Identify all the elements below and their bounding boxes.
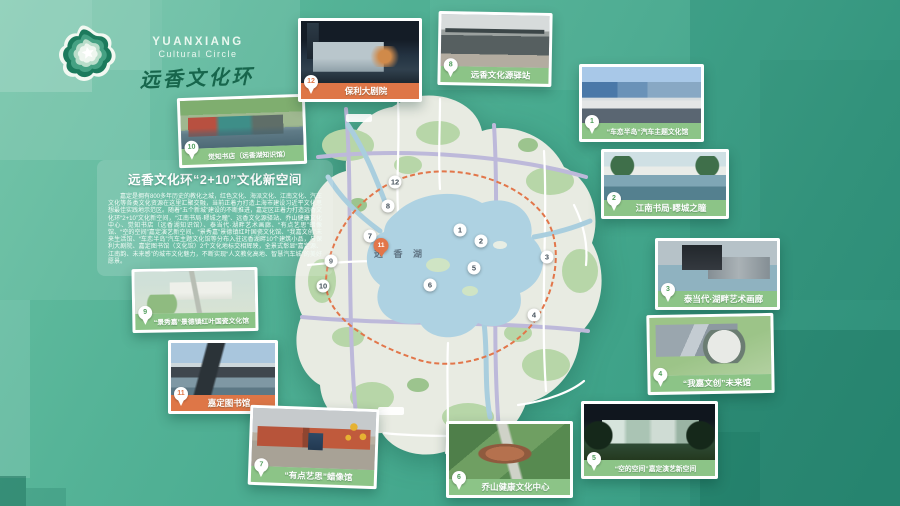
location-label-bar: 8 远香文化源驿站 — [440, 66, 548, 84]
location-card-jiading-library[interactable]: 11 嘉定图书馆 — [168, 340, 278, 414]
location-label: 嘉定图书馆 — [196, 397, 251, 409]
map-pin-badge: 6 — [452, 471, 467, 493]
map-marker-8[interactable]: 8 — [382, 200, 395, 213]
intro-title: 远香文化环“2+10”文化新空间 — [108, 169, 322, 188]
location-label: 泰当代·湖畔艺术画廊 — [672, 293, 763, 305]
location-photo — [251, 408, 376, 470]
location-label-bar: 3 泰当代·湖畔艺术画廊 — [658, 291, 777, 307]
brand-logo: YUANXIANG Cultural Circle 远香文化环 — [45, 16, 285, 102]
poster-canvas: YUANXIANG Cultural Circle 远香文化环 远香文化环“2+… — [0, 0, 900, 506]
logo-name: YUANXIANG — [133, 36, 263, 48]
location-photo — [449, 424, 570, 479]
bg-block — [26, 488, 66, 506]
location-card-juezhi-bookstore[interactable]: 10 觉知书店（远香湖知识馆） — [177, 94, 307, 168]
map-pin-badge: 10 — [184, 140, 200, 163]
location-card-lakeside-gallery[interactable]: 3 泰当代·湖畔艺术画廊 — [655, 238, 780, 310]
intro-body: 嘉定是拥有800多年历史的教化之城，红色文化、海派文化、江南文化、汽车文化等各类… — [108, 194, 322, 266]
location-photo — [301, 21, 419, 83]
location-label: “车恋半岛”汽车主题文化馆 — [595, 126, 689, 136]
map-marker-6[interactable]: 6 — [424, 279, 437, 292]
map-pin-badge: 4 — [653, 368, 668, 390]
map-pin-badge: 12 — [304, 75, 319, 97]
star-blob-icon — [52, 17, 124, 89]
location-label-bar: 9 “景秀嘉”景德镇红叶国瓷文化馆 — [135, 312, 255, 330]
location-label: “我嘉文创”未来馆 — [671, 376, 751, 389]
location-label-bar: 6 乔山健康文化中心 — [449, 479, 570, 495]
location-label-bar: 2 江南书局·疁城之瞳 — [604, 200, 726, 216]
location-photo — [604, 152, 726, 200]
location-card-auto-theme-hall[interactable]: 1 “车恋半岛”汽车主题文化馆 — [579, 64, 704, 142]
location-label-bar: 5 “空的空间”嘉定演艺新空间 — [584, 460, 715, 476]
logo-calligraphy: 远香文化环 — [117, 59, 278, 94]
location-card-jingxiujia-porcelain[interactable]: 9 “景秀嘉”景德镇红叶国瓷文化馆 — [131, 267, 258, 333]
map-pin-badge: 7 — [254, 458, 270, 481]
location-label: 远香文化源驿站 — [459, 68, 531, 81]
location-label: 乔山健康文化中心 — [469, 481, 549, 493]
location-label: “空的空间”嘉定演艺新空间 — [603, 463, 697, 473]
map-marker-3[interactable]: 3 — [541, 251, 554, 264]
map-marker-5[interactable]: 5 — [468, 262, 481, 275]
location-photo — [584, 404, 715, 460]
logo-latin-text: YUANXIANG Cultural Circle — [133, 36, 263, 59]
map-pin-badge: 1 — [585, 115, 600, 137]
location-card-wojia-future-hall[interactable]: 4 “我嘉文创”未来馆 — [646, 313, 774, 395]
location-label: 觉知书店（远香湖知识馆） — [196, 148, 290, 161]
map-pin-badge: 2 — [607, 192, 622, 214]
map-marker-1[interactable]: 1 — [454, 224, 467, 237]
location-card-culture-station[interactable]: 8 远香文化源驿站 — [437, 11, 552, 87]
location-label-bar: 7 “有点艺思”蜡像馆 — [251, 466, 374, 486]
location-label-bar: 12 保利大剧院 — [301, 83, 419, 99]
map-pin-badge: 9 — [138, 306, 153, 328]
map-pin-badge: 11 — [174, 387, 189, 409]
bg-block — [0, 300, 30, 478]
map-pin-badge: 5 — [587, 452, 602, 474]
bg-block — [760, 60, 900, 300]
map-marker-11-pin[interactable]: 11 — [374, 238, 389, 253]
location-label-bar: 4 “我嘉文创”未来馆 — [650, 374, 771, 392]
location-label: “景秀嘉”景德镇红叶国瓷文化馆 — [142, 315, 249, 327]
location-label: 江南书局·疁城之瞳 — [624, 202, 707, 214]
map-marker-2[interactable]: 2 — [475, 235, 488, 248]
logo-subname: Cultural Circle — [133, 49, 263, 59]
location-label-bar: 10 觉知书店（远香湖知识馆） — [182, 145, 304, 165]
location-label-bar: 1 “车恋半岛”汽车主题文化馆 — [582, 123, 701, 139]
intro-panel: 远香文化环“2+10”文化新空间 嘉定是拥有800多年历史的教化之城，红色文化、… — [97, 160, 333, 276]
map-marker-4[interactable]: 4 — [528, 309, 541, 322]
map-marker-10[interactable]: 10 — [317, 280, 330, 293]
map-pin-badge: 3 — [661, 283, 676, 305]
location-card-empty-space-theatre[interactable]: 5 “空的空间”嘉定演艺新空间 — [581, 401, 718, 479]
location-label: “有点艺思”蜡像馆 — [272, 469, 352, 484]
bg-block — [0, 476, 26, 506]
map-marker-12[interactable]: 12 — [389, 176, 402, 189]
location-card-jiangnan-bookstore[interactable]: 2 江南书局·疁城之瞳 — [601, 149, 729, 219]
location-card-poly-grand-theatre[interactable]: 12 保利大剧院 — [298, 18, 422, 102]
location-label: 保利大剧院 — [333, 85, 388, 97]
map-pin-badge: 8 — [443, 58, 458, 80]
location-card-wax-museum[interactable]: 7 “有点艺思”蜡像馆 — [248, 405, 380, 489]
location-card-health-culture-center[interactable]: 6 乔山健康文化中心 — [446, 421, 573, 498]
